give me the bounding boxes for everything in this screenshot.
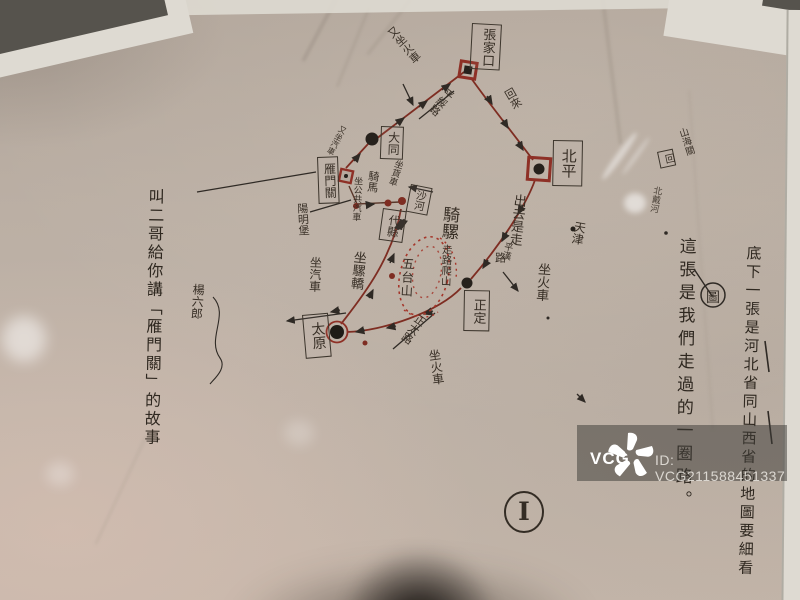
daixian-dot: [385, 200, 392, 207]
zhengding-node: [462, 278, 473, 289]
note-inserted-word-map: 圖: [705, 287, 721, 307]
transport-label-by-public-bus: 坐公共汽車: [350, 176, 362, 221]
watermark-panel: VCG ID: VCG211588451337: [577, 425, 787, 481]
pinghan-arrow: [503, 272, 518, 291]
story-pointer-line: [197, 172, 316, 192]
station-box-zhengding: 正定: [463, 290, 490, 331]
transport-label-by-car: 坐汽車: [308, 256, 322, 292]
transport-label-walk-climb: 走路爬山: [440, 244, 452, 286]
again-train-arrow: [403, 84, 413, 105]
vcg-starburst-icon: [607, 432, 655, 480]
place-label-wutaishan: 五台山: [399, 257, 414, 298]
shahe-node: [398, 197, 406, 205]
route-yanmenguan-datong: [346, 144, 368, 168]
place-label-hui-boxed: 回: [657, 149, 676, 169]
station-box-beiping: 北平: [552, 140, 583, 187]
small-dot: [547, 317, 550, 320]
watermark-id-text: ID: VCG211588451337: [655, 452, 787, 484]
transport-label-by-mule-sedan: 坐騾轎: [348, 250, 366, 290]
beiping-node: [527, 157, 550, 180]
taiyuan-node: [330, 325, 344, 339]
framed-map-photo: 張家口 北平 大同 雁門關 代縣 沙河 正定 太原 天津 五台山 陽明堡 山海關…: [0, 0, 800, 600]
station-box-zhangjiakou: 張家口: [470, 23, 502, 71]
transport-label-ride-mule: 騎騾: [438, 205, 458, 240]
transport-label-ride-horse: 騎馬: [366, 170, 380, 193]
note-left-story: 叫二哥給你講「雁門關」的故事: [141, 188, 162, 447]
beidaihe-dot: [664, 231, 668, 235]
route-zhangjiakou-beiping: [471, 78, 533, 160]
transport-label-road: 路: [494, 252, 506, 263]
waypoint-dot: [363, 341, 368, 346]
page-marker: I: [512, 497, 536, 529]
station-box-taiyuan: 太原: [302, 313, 332, 359]
yang-liulang-flourish: [210, 297, 222, 384]
datong-node: [366, 133, 379, 146]
station-box-daixian: 代縣: [379, 208, 407, 243]
station-box-datong: 大同: [380, 126, 404, 160]
waypoint-dot: [389, 273, 395, 279]
emphasis-stroke-1: [765, 341, 769, 372]
note-yang-liulang: 楊六郎: [189, 283, 204, 320]
station-box-yanmenguan: 雁門關: [317, 156, 340, 204]
place-label-tianjin: 天津: [570, 220, 587, 246]
place-label-yangmingbao: 陽明堡: [296, 202, 309, 236]
transport-label-by-train-north: 坐火車: [533, 262, 549, 302]
stray-arrow: [577, 394, 585, 402]
